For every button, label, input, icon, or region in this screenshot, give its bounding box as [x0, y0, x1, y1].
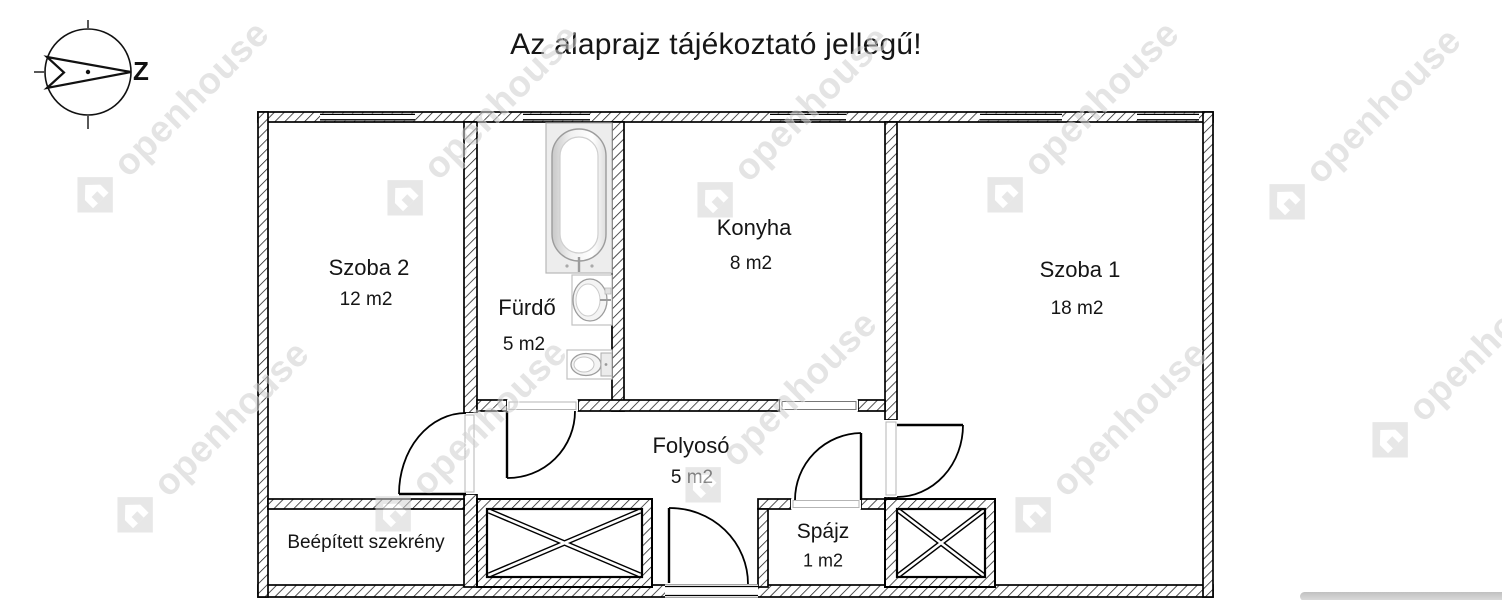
room-label-konyha: Konyha	[717, 215, 792, 241]
room-area-konyha: 8 m2	[730, 253, 772, 275]
room-area-folyoso: 5 m2	[671, 467, 713, 489]
floorplan-page: Az alaprajz tájékoztató jellegű! Z	[0, 0, 1502, 600]
toilet-icon	[567, 350, 612, 379]
room-area-furdo: 5 m2	[503, 334, 545, 356]
walls	[258, 112, 1213, 597]
bathtub-icon	[546, 123, 612, 273]
sink-icon	[572, 275, 612, 325]
room-label-folyoso: Folyosó	[652, 433, 729, 459]
room-area-spajz: 1 m2	[803, 551, 843, 572]
room-area-szoba2: 12 m2	[340, 289, 393, 311]
bottom-right-bar	[1300, 592, 1502, 600]
room-label-furdo: Fürdő	[498, 295, 555, 321]
room-label-wardrobe: Beépített szekrény	[287, 532, 444, 554]
room-label-szoba1: Szoba 1	[1040, 257, 1121, 283]
room-area-szoba1: 18 m2	[1051, 298, 1104, 320]
room-label-szoba2: Szoba 2	[329, 255, 410, 281]
floorplan-drawing	[0, 0, 1502, 600]
room-label-spajz: Spájz	[797, 520, 850, 544]
